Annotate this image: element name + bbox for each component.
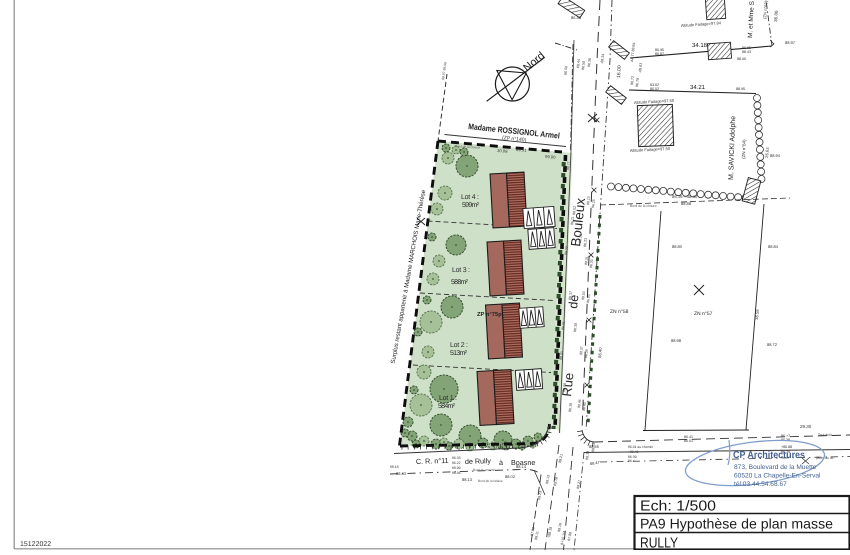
svg-text:36.80: 36.80: [773, 10, 779, 22]
svg-text:86.02: 86.02: [650, 87, 659, 91]
svg-text:86.43: 86.43: [571, 15, 582, 20]
svg-text:15122022: 15122022: [20, 541, 51, 548]
svg-text:99.00: 99.00: [545, 154, 556, 160]
svg-text:86.22: 86.22: [452, 461, 461, 465]
svg-text:Lot 3 :: Lot 3 :: [452, 267, 470, 274]
svg-text:C. R. n°11: C. R. n°11: [416, 456, 449, 466]
svg-text:86.+: 86.+: [628, 459, 635, 463]
svg-text:88.98: 88.98: [671, 338, 682, 343]
svg-text:Bord du chemin: Bord du chemin: [473, 468, 496, 472]
svg-text:34.18: 34.18: [692, 42, 708, 49]
svg-text:60520 La Chapelle-En-Serval: 60520 La Chapelle-En-Serval: [734, 473, 821, 480]
svg-text:88.80: 88.80: [672, 244, 683, 249]
svg-text:+86.88: +86.88: [781, 445, 792, 449]
svg-text:86.33: 86.33: [452, 456, 461, 460]
svg-text:ZN n°57: ZN n°57: [694, 311, 713, 317]
svg-text:Bord de la falaise: Bord de la falaise: [478, 479, 503, 483]
svg-text:(ZN n°64): (ZN n°64): [741, 139, 747, 159]
svg-text:588m²: 588m²: [451, 279, 469, 286]
svg-text:Bord de la cloture: Bord de la cloture: [630, 204, 657, 208]
svg-text:Lot 2 :: Lot 2 :: [450, 342, 468, 349]
svg-text:86.01 au chemin: 86.01 au chemin: [628, 445, 653, 449]
svg-text:513m²: 513m²: [450, 350, 468, 357]
svg-text:88.94: 88.94: [770, 153, 781, 158]
svg-text:88.99: 88.99: [452, 466, 461, 470]
svg-text:89.51: 89.51: [516, 147, 527, 153]
svg-text:30.08: 30.08: [497, 148, 508, 154]
svg-text:Rue: Rue: [559, 372, 576, 397]
svg-text:86.40: 86.40: [597, 347, 603, 359]
svg-text:86.87: 86.87: [655, 52, 664, 56]
svg-text:Ech: 1/500: Ech: 1/500: [640, 499, 716, 515]
svg-text:tél:03.44.54.68.67: tél:03.44.54.68.67: [734, 481, 787, 488]
svg-text:RULLY: RULLY: [640, 536, 678, 551]
svg-text:88.18: 88.18: [390, 465, 399, 469]
svg-text:+86.49: +86.49: [628, 450, 639, 454]
svg-text:(Bord de la..: (Bord de la..: [816, 456, 835, 460]
svg-text:88.43: 88.43: [396, 471, 407, 476]
svg-text:à: à: [499, 458, 503, 467]
svg-text:88.14: 88.14: [516, 464, 527, 469]
svg-text:88.43: 88.43: [742, 50, 751, 54]
svg-text:Tout droit: Tout droit: [818, 433, 832, 437]
svg-text:599m²: 599m²: [462, 202, 480, 209]
svg-text:ZP n°75p: ZP n°75p: [477, 311, 502, 318]
svg-text:873, Boulevard de la Muette: 873, Boulevard de la Muette: [734, 464, 817, 471]
svg-text:PA9 Hypothèse de plan masse: PA9 Hypothèse de plan masse: [640, 516, 833, 532]
svg-text:16.00: 16.00: [616, 65, 623, 78]
svg-text:36.58: 36.58: [754, 309, 760, 321]
svg-text:34.21: 34.21: [690, 84, 706, 91]
svg-text:584m²: 584m²: [438, 403, 456, 410]
svg-text:88.97: 88.97: [785, 40, 796, 45]
svg-text:88.06: 88.06: [452, 471, 461, 475]
svg-text:ZN n°58: ZN n°58: [610, 309, 629, 315]
svg-text:88.02: 88.02: [505, 474, 516, 479]
svg-text:88.72: 88.72: [767, 342, 778, 347]
svg-text:CP Architectures: CP Architectures: [733, 450, 805, 461]
svg-text:86.16—38.40: 86.16—38.40: [672, 194, 698, 199]
svg-text:86.51: 86.51: [684, 439, 693, 443]
svg-text:Lot 4 :: Lot 4 :: [461, 194, 479, 201]
svg-text:88.45: 88.45: [589, 444, 600, 449]
svg-text:Lot 1 :: Lot 1 :: [439, 395, 457, 402]
svg-text:88.13: 88.13: [462, 477, 473, 482]
svg-text:88.95.: 88.95.: [736, 87, 746, 91]
svg-text:de Rully: de Rully: [465, 456, 492, 466]
svg-text:88.06: 88.06: [737, 57, 746, 61]
svg-text:88.84: 88.84: [768, 244, 779, 249]
svg-text:29.30: 29.30: [800, 424, 812, 429]
